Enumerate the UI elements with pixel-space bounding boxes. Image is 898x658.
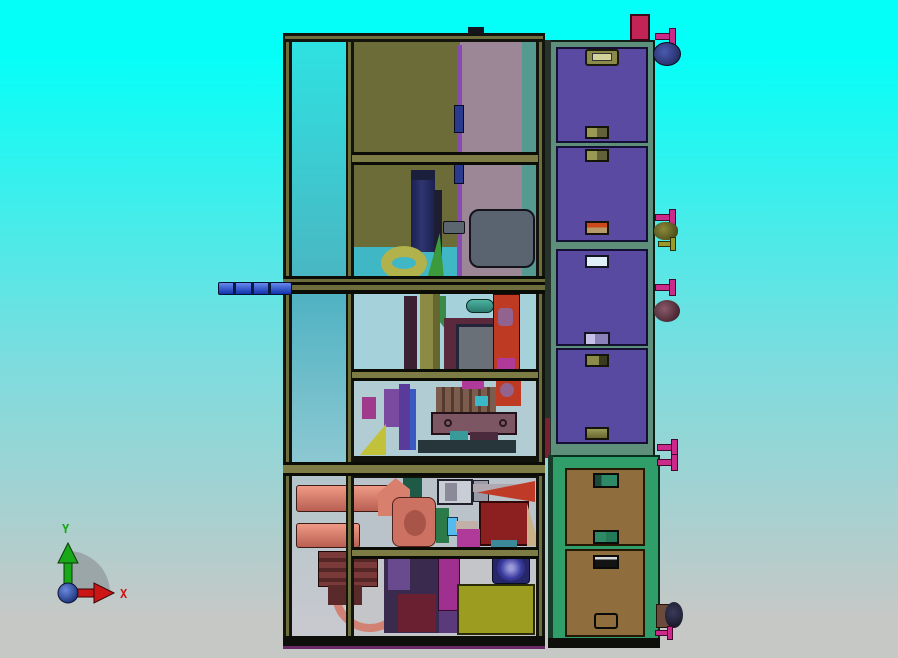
under-plate <box>418 440 516 453</box>
caster-wheel-top <box>653 42 681 66</box>
frame-rail-4 <box>283 462 545 476</box>
blue-guide-strip <box>410 389 416 450</box>
maroon-block-small <box>328 585 362 605</box>
ldoor2-handle-top <box>593 555 619 569</box>
sensor-tab-gray <box>443 221 465 234</box>
upper-cabinet-left-edge <box>545 40 551 458</box>
frame-rail-3 <box>352 369 538 381</box>
upper-cabinet-maroon-edge <box>545 418 550 458</box>
cyan-fitting <box>475 396 488 406</box>
plate-screw-right <box>499 419 507 427</box>
door3-handle-bottom <box>584 332 610 346</box>
framed-gray-panel <box>456 324 496 374</box>
rod-carriage-upper <box>454 105 464 133</box>
teal-fitting-low <box>450 431 468 440</box>
leveling-foot-6-cap <box>667 626 673 640</box>
cad-viewport[interactable]: Y X <box>0 0 898 658</box>
ldoor1-handle-bottom <box>593 530 619 544</box>
frame-rail-1 <box>352 152 538 165</box>
door4-handle-top <box>585 354 609 367</box>
frame-post-outer-left-core <box>286 41 289 639</box>
olive-strip-mid <box>420 294 433 380</box>
frame-base-magenta-line <box>283 646 545 649</box>
door-plate-rounded <box>469 209 535 268</box>
door1-handle <box>585 126 609 139</box>
linear-rail-bar <box>218 282 292 295</box>
x-axis-label: X <box>120 587 128 601</box>
cad-screenshot: Y X <box>0 0 898 658</box>
red-column-detail-lower <box>500 383 514 397</box>
door1-nameplate-inner <box>592 53 612 61</box>
frame-top-bar-core <box>285 36 543 39</box>
teal-cylinder <box>466 299 494 313</box>
magenta-gearbox <box>457 529 480 547</box>
yellow-ring <box>381 246 427 280</box>
frame-rail-5 <box>352 547 538 559</box>
purple-column-lower <box>399 384 410 450</box>
door2-handle-bottom <box>585 221 609 235</box>
bearing-inner <box>445 483 457 501</box>
rail-bar-joint-3 <box>268 282 271 295</box>
lower-cabinet-base <box>548 638 660 648</box>
frame-top-nub <box>468 27 484 34</box>
gear-assembly-violet <box>388 558 410 590</box>
plate-screw-left <box>444 419 452 427</box>
gear-assembly-maroon <box>398 594 436 632</box>
frame-post-inner-core <box>348 41 351 639</box>
rail-bar-joint-2 <box>251 282 254 295</box>
glass-panel-top <box>291 41 346 278</box>
hinge-pin-yellow-cap <box>670 237 676 251</box>
origin-sphere <box>58 583 78 603</box>
y-axis-label: Y <box>62 522 70 536</box>
signal-post-crimson <box>630 14 650 41</box>
magenta-block-left <box>362 397 376 419</box>
olive-strip-mid-dark <box>433 294 440 380</box>
purple-block-low <box>439 611 457 633</box>
panel-olive <box>352 41 460 247</box>
rail-bar-joint-1 <box>233 282 236 295</box>
leveling-foot-5-cap <box>671 454 678 471</box>
axis-triad: Y X <box>36 515 156 635</box>
door4-handle-bottom <box>585 427 609 440</box>
roller-hub-core <box>404 510 426 536</box>
frame-rail-2 <box>283 276 545 294</box>
electrical-box-olive <box>457 584 535 635</box>
ldoor1-handle-top <box>593 473 619 488</box>
caster-wheel-bottom <box>665 602 683 628</box>
leveling-foot-3-cap <box>669 279 676 296</box>
ldoor2-handle-bottom <box>594 613 618 629</box>
door3-handle-top <box>585 255 609 268</box>
frame-post-right-core <box>539 41 542 639</box>
door2-handle-top <box>585 149 609 162</box>
lower-cabinet-left-edge <box>548 455 553 640</box>
red-column-detail-upper <box>498 308 513 326</box>
maroon-post-mid <box>404 296 417 369</box>
caster-wheel-mid <box>654 300 680 322</box>
glass-panel-mid <box>291 294 346 462</box>
motor-body <box>411 180 435 252</box>
